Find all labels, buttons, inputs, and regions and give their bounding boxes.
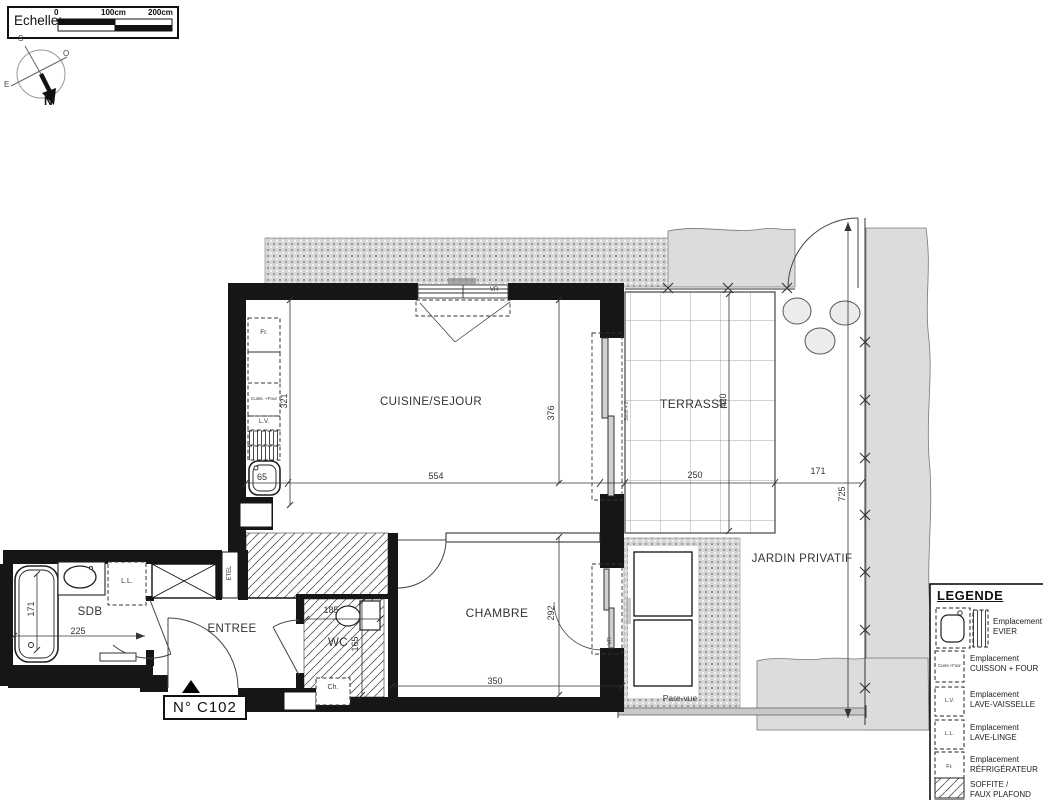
room-label-wc: WC (323, 637, 353, 650)
window-sill-tag (626, 598, 631, 624)
compass-east: E (4, 81, 9, 90)
gray-zone-bottom-right (757, 658, 929, 730)
dim-sdb-width: 225 (63, 626, 93, 636)
legend-fr-mini-label: Fr. (935, 764, 964, 770)
terrace-tiles (625, 292, 775, 533)
drainer-box-2 (248, 446, 280, 460)
dim-kitchen-height-left: 321 (279, 386, 289, 416)
bathtub (15, 566, 58, 662)
legend-item-lave-vaisselle: Emplacement LAVE-VAISSELLE (970, 690, 1035, 710)
legend-item-cuisson: Emplacement CUISSON + FOUR (970, 654, 1038, 674)
dim-terrasse-width: 250 (680, 470, 710, 480)
bathroom-door (113, 600, 171, 658)
threshold-label: Seuil + 2 (624, 391, 630, 431)
legend-item-lave-linge: Emplacement LAVE-LINGE (970, 723, 1019, 743)
dim-chambre-width: 350 (480, 676, 510, 686)
pare-vue-label: Pare-vue (650, 693, 710, 703)
hedge-area-top-right (668, 228, 795, 287)
dim-wc-height: 165 (350, 629, 360, 659)
unit-number-tag: N° C102 (163, 695, 247, 720)
shutter-label-kitchen: VR (482, 287, 506, 293)
room-label-chambre: CHAMBRE (452, 607, 542, 620)
room-label-jardin-privatif: JARDIN PRIVATIF (747, 553, 857, 566)
closet (152, 564, 216, 598)
gray-strip-right (866, 228, 931, 730)
room-label-entree: ENTREE (202, 623, 262, 636)
garden-slab-zone (624, 538, 740, 710)
legend-soffite-line2: FAUX PLAFOND (970, 790, 1031, 800)
legend-title: LEGENDE (937, 589, 1003, 603)
boiler-box (316, 678, 350, 705)
window-height-tag (448, 278, 476, 285)
room-label-sdb: SDB (70, 606, 110, 619)
compass-rose (11, 46, 67, 105)
dim-terrasse-height: 420 (718, 386, 728, 416)
legend-fr-line1: Emplacement (970, 755, 1038, 765)
kitchen-appliances (248, 318, 280, 460)
partitions (446, 533, 600, 542)
legend-soffite-symbol (935, 778, 964, 798)
scale-tick-0: 0 (54, 9, 58, 18)
dim-kitchen-width: 554 (421, 471, 451, 481)
dim-wc-width: 185 (316, 605, 346, 615)
compass-west: O (63, 50, 69, 59)
dim-jardin-width: 171 (803, 466, 833, 476)
dim-sink-width: 65 (247, 472, 277, 482)
washbasin (58, 562, 105, 595)
legend-ll-mini-label: L.L. (935, 731, 964, 737)
legend-soffite-line1: SOFFITE / (970, 780, 1031, 790)
legend-lv-line2: LAVE-VAISSELLE (970, 700, 1035, 710)
cabinet-box (248, 352, 280, 383)
bedroom-door (398, 540, 446, 588)
drainer-box-1 (248, 431, 280, 445)
floorplan-page: Echelle: 0 100cm 200cm S O E N CUISINE/S… (0, 0, 1043, 800)
legend-evier-line2: EVIER (993, 627, 1042, 637)
legend-item-soffite: SOFFITE / FAUX PLAFOND (970, 780, 1031, 800)
legend-ll-line1: Emplacement (970, 723, 1019, 733)
compass-south: S (18, 35, 23, 44)
legend-cuisson-line2: CUISSON + FOUR (970, 664, 1038, 674)
dim-jardin-height: 725 (837, 479, 847, 509)
scale-tick-200: 200cm (148, 9, 173, 18)
room-label-cuisine-sejour: CUISINE/SEJOUR (376, 396, 486, 409)
compass-north: N (44, 95, 53, 108)
scale-tick-100: 100cm (101, 9, 126, 18)
boiler-label: Ch. (316, 684, 350, 691)
legend-lv-mini-label: L.V. (935, 698, 964, 704)
legend-ll-line2: LAVE-LINGE (970, 733, 1019, 743)
fridge-label: Fr. (248, 329, 280, 336)
dim-chambre-height: 292 (546, 598, 556, 628)
legend-lv-line1: Emplacement (970, 690, 1035, 700)
legend-cuisson-mini-label: Cuiss.+Four (935, 663, 964, 668)
garden-stones (783, 298, 860, 354)
legend-evier-line1: Emplacement (993, 617, 1042, 627)
legend-cuisson-line1: Emplacement (970, 654, 1038, 664)
entrance-marker-triangle (182, 680, 200, 693)
washer-label: L.L. (108, 578, 146, 585)
etel-label: ETEL (227, 558, 233, 588)
shutter-label-bedroom: VR (607, 626, 613, 656)
hob-oven-label: Cuiss. +Four (246, 396, 282, 401)
wc-door (273, 620, 299, 675)
floorplan-drawing (0, 0, 1043, 800)
kitchen-window (416, 285, 510, 342)
dim-kitchen-height-right: 376 (546, 398, 556, 428)
dim-bath-length: 171 (26, 594, 36, 624)
dishwasher-label: L.V. (248, 419, 280, 425)
legend-fr-line2: RÉFRIGÉRATEUR (970, 765, 1038, 775)
kitchen-bay-window (592, 333, 622, 500)
legend-item-evier: Emplacement EVIER (993, 617, 1042, 637)
legend-item-refrigerateur: Emplacement RÉFRIGÉRATEUR (970, 755, 1038, 775)
bath-step (100, 653, 136, 661)
